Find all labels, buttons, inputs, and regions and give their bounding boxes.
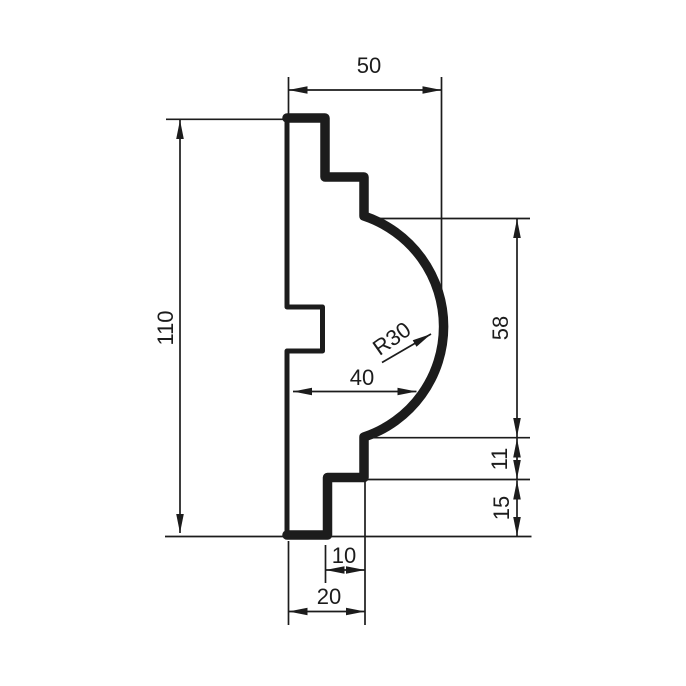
dim-label-total-height: 110 xyxy=(155,310,177,345)
profile-face-outline xyxy=(287,118,444,535)
drawing-canvas: 50 110 58 11 15 40 R30 10 20 xyxy=(0,0,686,686)
dim-label-top-width: 50 xyxy=(357,55,381,77)
dimension-lines xyxy=(180,90,517,612)
arrow-40-right xyxy=(398,388,417,396)
arrow-50-right xyxy=(423,86,442,94)
arrow-20-left xyxy=(289,608,308,616)
arrow-40-left xyxy=(293,388,312,396)
dim-label-bottom-width: 20 xyxy=(317,586,341,608)
arrow-r30 xyxy=(413,334,431,347)
arrow-110-bottom xyxy=(176,514,184,533)
dim-label-arc-height: 58 xyxy=(490,316,512,340)
arrow-15-top xyxy=(513,481,521,500)
arrow-110-top xyxy=(176,120,184,139)
dim-label-mid-width: 40 xyxy=(350,367,374,389)
profile-back-line xyxy=(287,118,323,535)
arrow-50-left xyxy=(289,86,308,94)
dim-label-mid-step-height: 11 xyxy=(489,448,511,471)
arrow-58-bottom xyxy=(513,418,521,437)
arrow-58-top xyxy=(513,219,521,238)
profile-technical-drawing xyxy=(0,0,686,686)
arrow-20-right xyxy=(346,608,365,616)
arrow-15-bottom xyxy=(513,517,521,536)
dim-label-bottom-step-height: 15 xyxy=(491,496,513,520)
arrow-11-top xyxy=(513,439,521,458)
arrow-11-bottom xyxy=(513,460,521,479)
dim-label-bottom-inner-width: 10 xyxy=(332,545,356,567)
